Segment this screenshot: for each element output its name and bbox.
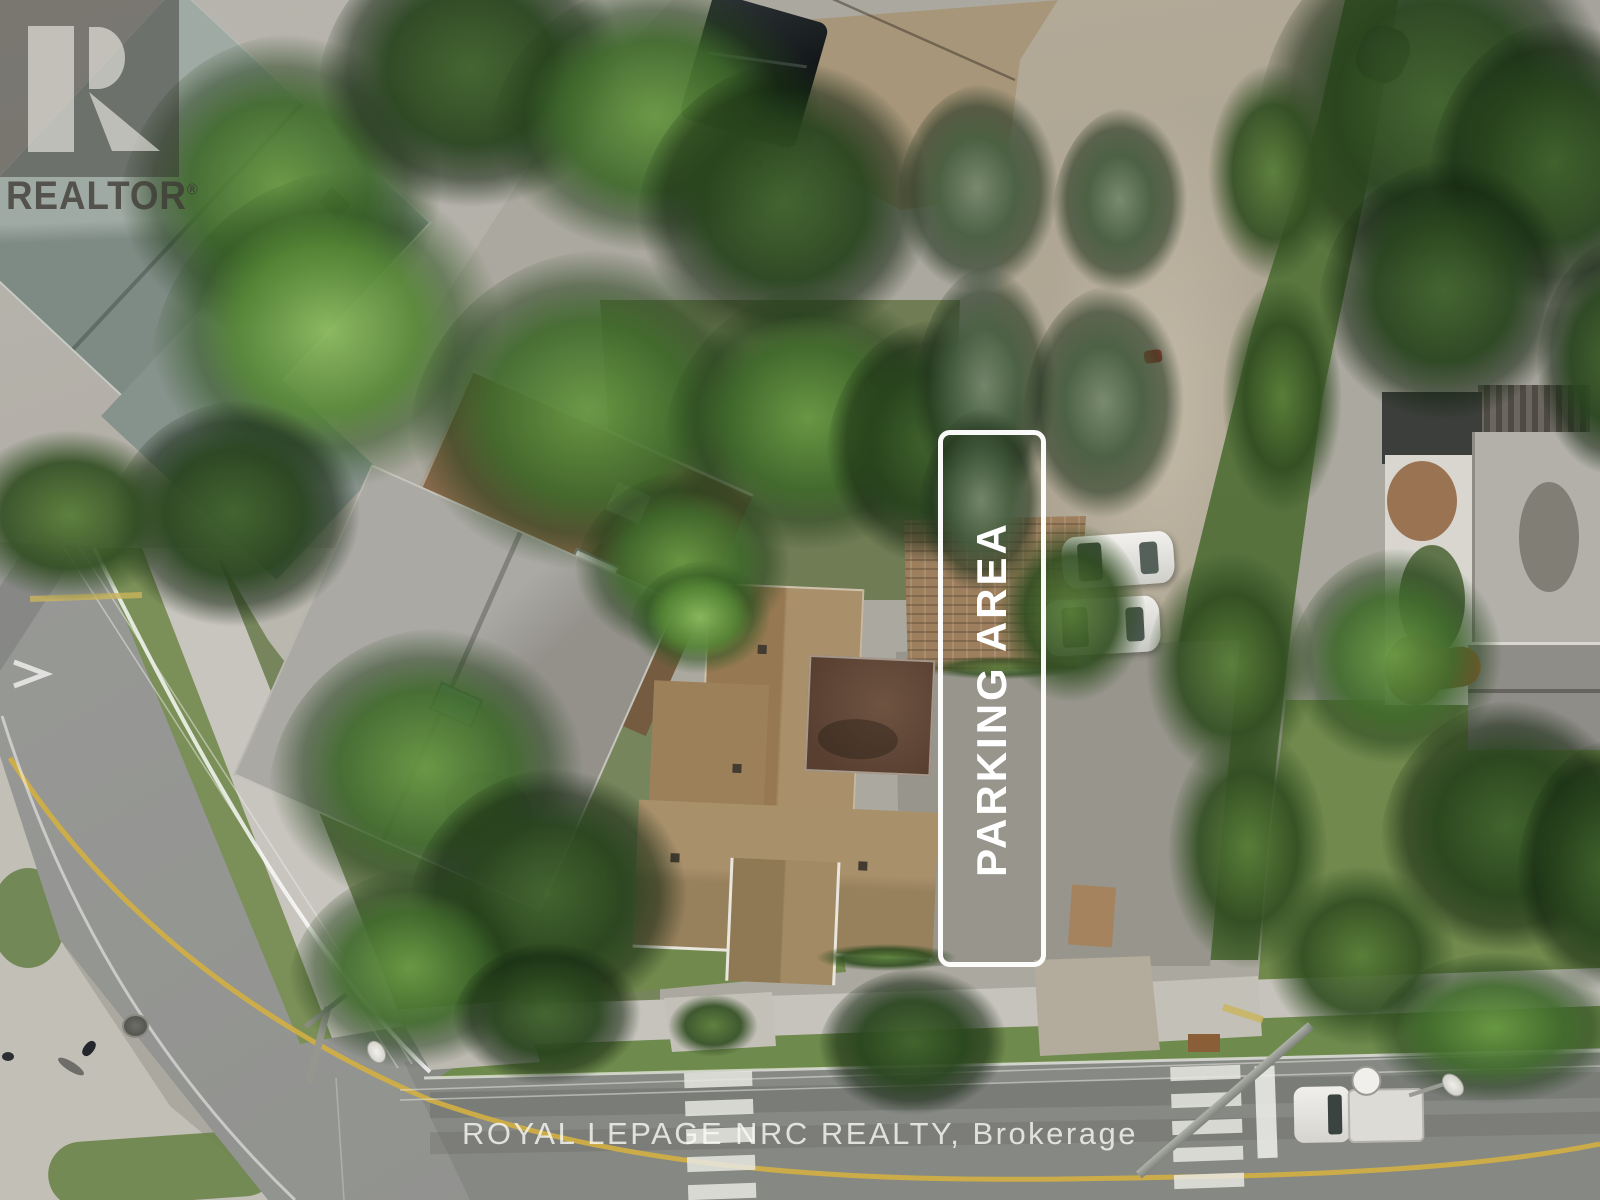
weed-growth	[1168, 726, 1328, 996]
brokerage-watermark: ROYAL LEPAGE NRC REALTY, Brokerage	[0, 1116, 1600, 1152]
tree-round	[628, 560, 798, 710]
realtor-watermark: REALTOR®	[0, 0, 260, 230]
tree-canopy	[452, 942, 662, 1112]
realtor-logo-square	[0, 0, 179, 177]
realtor-wordmark: REALTOR®	[6, 174, 199, 219]
realtor-wordmark-text: REALTOR	[6, 174, 187, 218]
overhead-cable	[826, 0, 1015, 80]
pavement-chevron	[14, 662, 46, 686]
aerial-property-photo: PARKING AREA REALTOR® ROYAL LEPAGE NRC R…	[0, 0, 1600, 1200]
weed-growth	[1208, 64, 1338, 304]
realtor-r-icon	[0, 0, 179, 177]
registered-trademark-symbol: ®	[187, 182, 199, 199]
weed-growth	[1222, 280, 1342, 540]
parking-area-label: PARKING AREA	[968, 521, 1016, 877]
dog	[2, 1052, 14, 1061]
manhole-cover	[122, 1014, 149, 1038]
parking-area-annotation-box: PARKING AREA	[938, 430, 1046, 967]
shrub	[668, 994, 758, 1064]
conifer-tree	[1052, 108, 1202, 338]
